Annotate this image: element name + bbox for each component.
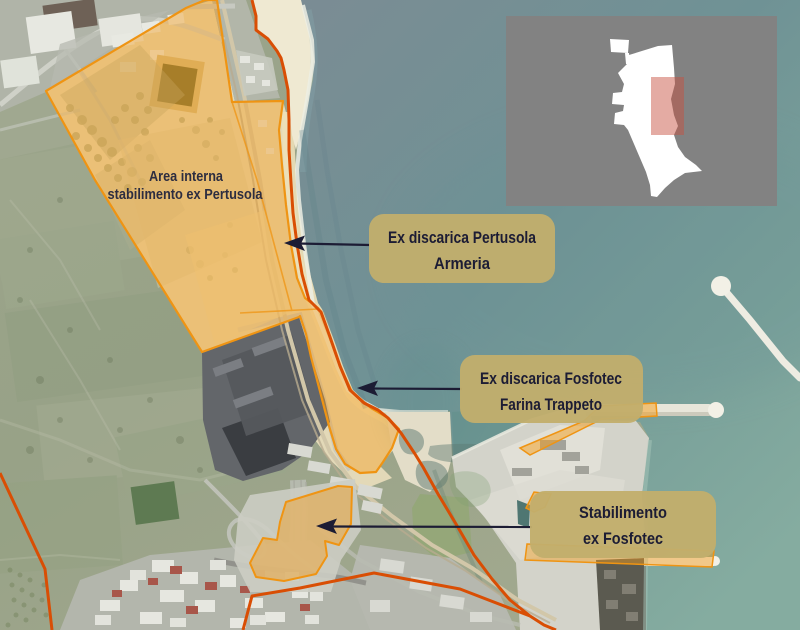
svg-text:stabilimento ex Pertusola: stabilimento ex Pertusola xyxy=(108,186,264,203)
svg-text:ex Fosfotec: ex Fosfotec xyxy=(583,529,663,548)
svg-text:Ex discarica Pertusola: Ex discarica Pertusola xyxy=(388,228,536,247)
svg-text:Ex discarica Fosfotec: Ex discarica Fosfotec xyxy=(480,369,622,388)
svg-text:Armeria: Armeria xyxy=(434,254,490,273)
svg-text:Farina Trappeto: Farina Trappeto xyxy=(500,395,602,414)
svg-text:Stabilimento: Stabilimento xyxy=(579,503,667,522)
svg-text:Area interna: Area interna xyxy=(149,168,224,185)
